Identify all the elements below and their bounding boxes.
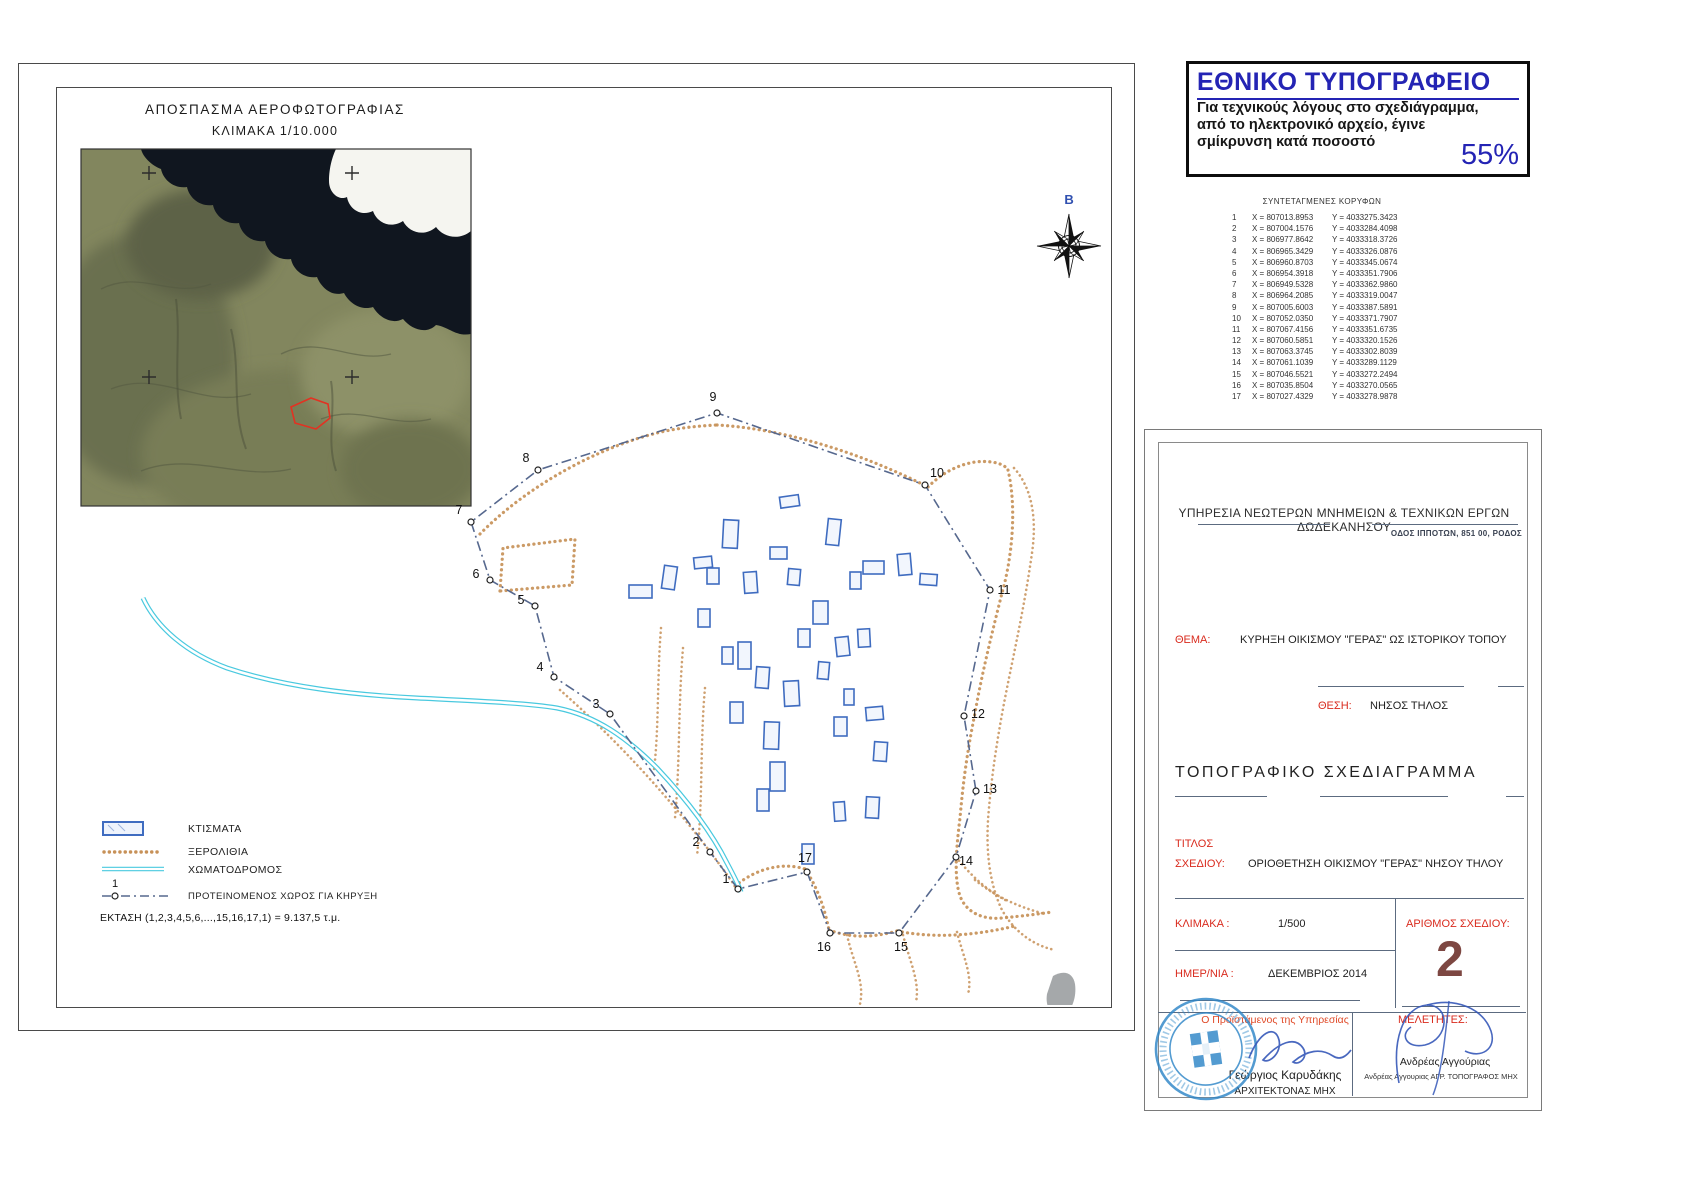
coord-cell: Y = 4033278.9878 bbox=[1332, 392, 1412, 403]
coord-cell: Y = 4033351.6735 bbox=[1332, 325, 1412, 336]
boundary-point-label: 4 bbox=[537, 660, 544, 674]
boundary-point-label: 8 bbox=[523, 451, 530, 465]
coord-cell: X = 806954.3918 bbox=[1252, 269, 1332, 280]
coord-cell: Y = 4033362.9860 bbox=[1332, 280, 1412, 291]
boundary-point-label: 13 bbox=[983, 782, 997, 796]
coord-row: 11X = 807067.4156Y = 4033351.6735 bbox=[1232, 325, 1412, 336]
coord-cell: Y = 4033326.0876 bbox=[1332, 247, 1412, 258]
coord-cell: Y = 4033284.4098 bbox=[1332, 224, 1412, 235]
document-type: ΤΟΠΟΓΡΑΦΙΚΟ ΣΧΕΔΙΑΓΡΑΜΜΑ bbox=[1175, 764, 1477, 782]
coord-cell: 6 bbox=[1232, 269, 1252, 280]
coord-row: 1X = 807013.8953Y = 4033275.3423 bbox=[1232, 213, 1412, 224]
legend-item-dirt-road: ΧΩΜΑΤΟΔΡΟΜΟΣ bbox=[100, 864, 282, 876]
coord-cell: 17 bbox=[1232, 392, 1252, 403]
coord-cell: X = 807035.8504 bbox=[1252, 381, 1332, 392]
boundary-point bbox=[714, 410, 720, 416]
north-label: B bbox=[1064, 192, 1073, 207]
vertex-coordinates-table: ΣΥΝΤΕΤΑΓΜΕΝΕΣ ΚΟΡΥΦΩΝ 1X = 807013.8953Y … bbox=[1232, 197, 1412, 403]
boundary-symbol bbox=[100, 890, 188, 902]
legend-label-dirt-road: ΧΩΜΑΤΟΔΡΟΜΟΣ bbox=[188, 864, 282, 876]
coord-cell: X = 806949.5328 bbox=[1252, 280, 1332, 291]
legend-boundary-marker: 1 bbox=[112, 878, 118, 890]
boundary-point bbox=[896, 930, 902, 936]
coord-row: 8X = 806964.2085Y = 4033319.0047 bbox=[1232, 291, 1412, 302]
coord-cell: X = 807046.5521 bbox=[1252, 370, 1332, 381]
coord-cell: X = 806960.8703 bbox=[1252, 258, 1332, 269]
coord-cell: Y = 4033302.8039 bbox=[1332, 347, 1412, 358]
scale-label: ΚΛΙΜΑΚΑ : bbox=[1175, 918, 1229, 930]
coord-cell: Y = 4033319.0047 bbox=[1332, 291, 1412, 302]
thesi-label: ΘΕΣΗ: bbox=[1318, 700, 1352, 712]
coord-cell: Y = 4033320.1526 bbox=[1332, 336, 1412, 347]
boundary-point-label: 5 bbox=[518, 593, 525, 607]
coord-cell: 1 bbox=[1232, 213, 1252, 224]
coord-cell: 14 bbox=[1232, 358, 1252, 369]
coord-cell: 7 bbox=[1232, 280, 1252, 291]
coord-row: 12X = 807060.5851Y = 4033320.1526 bbox=[1232, 336, 1412, 347]
coord-cell: X = 807005.6003 bbox=[1252, 303, 1332, 314]
coord-row: 7X = 806949.5328Y = 4033362.9860 bbox=[1232, 280, 1412, 291]
building-symbol bbox=[100, 820, 188, 838]
titlos-label-line1: ΤΙΤΛΟΣ bbox=[1175, 838, 1213, 850]
coord-cell: 5 bbox=[1232, 258, 1252, 269]
boundary-point-label: 14 bbox=[959, 854, 973, 868]
surveyor-signature bbox=[1385, 995, 1510, 1100]
date-label: ΗΜΕΡ/ΝΙΑ : bbox=[1175, 968, 1234, 980]
legend-label-buildings: ΚΤΙΣΜΑΤΑ bbox=[188, 823, 242, 835]
boundary-point-label: 15 bbox=[894, 940, 908, 954]
boundary-point bbox=[804, 869, 810, 875]
coord-cell: Y = 4033387.5891 bbox=[1332, 303, 1412, 314]
boundary-point bbox=[735, 886, 741, 892]
scale-value: 1/500 bbox=[1278, 918, 1306, 930]
titlos-value: ΟΡΙΟΘΕΤΗΣΗ ΟΙΚΙΣΜΟΥ "ΓΕΡΑΣ" ΝΗΣΟΥ ΤΗΛΟΥ bbox=[1248, 858, 1503, 870]
boundary-point-label: 12 bbox=[971, 707, 985, 721]
coordinates-table-title: ΣΥΝΤΕΤΑΓΜΕΝΕΣ ΚΟΡΥΦΩΝ bbox=[1232, 197, 1412, 206]
boundary-point bbox=[827, 930, 833, 936]
boundary-point-label: 10 bbox=[930, 466, 944, 480]
coordinates-table-rows: 1X = 807013.8953Y = 4033275.34232X = 807… bbox=[1232, 213, 1412, 403]
compass-star bbox=[1037, 214, 1101, 278]
boundary-point-label: 17 bbox=[798, 851, 812, 865]
coord-cell: 16 bbox=[1232, 381, 1252, 392]
coord-cell: X = 806977.8642 bbox=[1252, 235, 1332, 246]
thesi-value: ΝΗΣΟΣ ΤΗΛΟΣ bbox=[1370, 700, 1448, 712]
coord-row: 15X = 807046.5521Y = 4033272.2494 bbox=[1232, 370, 1412, 381]
coord-cell: X = 807063.3745 bbox=[1252, 347, 1332, 358]
coord-row: 4X = 806965.3429Y = 4033326.0876 bbox=[1232, 247, 1412, 258]
boundary-point-label: 7 bbox=[456, 503, 463, 517]
scan-artifact bbox=[1047, 973, 1076, 1005]
coord-cell: Y = 4033351.7906 bbox=[1332, 269, 1412, 280]
sheet-number-label: ΑΡΙΘΜΟΣ ΣΧΕΔΙΟΥ: bbox=[1406, 918, 1510, 930]
date-value: ΔΕΚΕΜΒΡΙΟΣ 2014 bbox=[1268, 968, 1367, 980]
coord-row: 6X = 806954.3918Y = 4033351.7906 bbox=[1232, 269, 1412, 280]
coord-row: 3X = 806977.8642Y = 4033318.3726 bbox=[1232, 235, 1412, 246]
coord-cell: 8 bbox=[1232, 291, 1252, 302]
coord-cell: 9 bbox=[1232, 303, 1252, 314]
boundary-point bbox=[922, 482, 928, 488]
coord-cell: Y = 4033270.0565 bbox=[1332, 381, 1412, 392]
stamp-percent: 55% bbox=[1461, 139, 1519, 172]
agency-address: ΟΔΟΣ ΙΠΠΟΤΩΝ, 851 00, ΡΟΔΟΣ bbox=[1330, 529, 1522, 538]
sheet-number-value: 2 bbox=[1436, 930, 1466, 988]
coord-cell: X = 807061.1039 bbox=[1252, 358, 1332, 369]
stamp-line1: Για τεχνικούς λόγους στο σχεδιάγραμμα, bbox=[1197, 100, 1519, 117]
legend-item-drystone: ΞΕΡΟΛΙΘΙΑ bbox=[100, 846, 248, 858]
drystone-walls bbox=[480, 425, 1055, 1004]
boundary-point bbox=[535, 467, 541, 473]
boundary-point bbox=[551, 674, 557, 680]
coord-cell: X = 807027.4329 bbox=[1252, 392, 1332, 403]
coord-row: 14X = 807061.1039Y = 4033289.1129 bbox=[1232, 358, 1412, 369]
dirt-road-symbol bbox=[100, 865, 188, 875]
boundary-point bbox=[532, 603, 538, 609]
boundary-point bbox=[607, 711, 613, 717]
coord-row: 13X = 807063.3745Y = 4033302.8039 bbox=[1232, 347, 1412, 358]
coord-cell: X = 806964.2085 bbox=[1252, 291, 1332, 302]
boundary-point-label: 2 bbox=[693, 835, 700, 849]
coord-cell: Y = 4033289.1129 bbox=[1332, 358, 1412, 369]
boundary-point-label: 11 bbox=[998, 583, 1011, 597]
boundary-point-label: 16 bbox=[817, 940, 831, 954]
coord-row: 17X = 807027.4329Y = 4033278.9878 bbox=[1232, 392, 1412, 403]
aerial-photo bbox=[57, 149, 481, 539]
boundary-point bbox=[707, 849, 713, 855]
coord-cell: X = 807067.4156 bbox=[1252, 325, 1332, 336]
legend-label-drystone: ΞΕΡΟΛΙΘΙΑ bbox=[188, 846, 248, 858]
boundary-point bbox=[487, 577, 493, 583]
boundary-point-label: 3 bbox=[593, 697, 600, 711]
coord-row: 10X = 807052.0350Y = 4033371.7907 bbox=[1232, 314, 1412, 325]
coord-cell: Y = 4033371.7907 bbox=[1332, 314, 1412, 325]
boundary-point-label: 9 bbox=[710, 390, 717, 404]
boundary-point-label: 1 bbox=[723, 872, 730, 886]
coord-cell: X = 807004.1576 bbox=[1252, 224, 1332, 235]
national-printing-stamp: ΕΘΝΙΚΟ ΤΥΠΟΓΡΑΦΕΙΟ Για τεχνικούς λόγους … bbox=[1186, 61, 1530, 177]
thema-value: ΚΥΡΗΞΗ ΟΙΚΙΣΜΟΥ "ΓΕΡΑΣ" ΩΣ ΙΣΤΟΡΙΚΟΥ ΤΟΠ… bbox=[1240, 634, 1507, 646]
stamp-line2: από το ηλεκτρονικό αρχείο, έγινε bbox=[1197, 117, 1519, 134]
coord-row: 2X = 807004.1576Y = 4033284.4098 bbox=[1232, 224, 1412, 235]
coord-cell: 10 bbox=[1232, 314, 1252, 325]
boundary-point bbox=[468, 519, 474, 525]
coord-cell: Y = 4033272.2494 bbox=[1332, 370, 1412, 381]
coord-cell: 2 bbox=[1232, 224, 1252, 235]
thema-label: ΘΕΜΑ: bbox=[1175, 634, 1210, 646]
coord-cell: 15 bbox=[1232, 370, 1252, 381]
coord-cell: X = 807052.0350 bbox=[1252, 314, 1332, 325]
boundary-point-label: 6 bbox=[473, 567, 480, 581]
coord-cell: X = 807013.8953 bbox=[1252, 213, 1332, 224]
proposed-boundary-line bbox=[471, 413, 990, 933]
boundary-point bbox=[973, 788, 979, 794]
compass-rose: B bbox=[1037, 192, 1101, 278]
drystone-symbol bbox=[100, 847, 188, 857]
coord-cell: 4 bbox=[1232, 247, 1252, 258]
legend-label-boundary: ΠΡΟΤΕΙΝΟΜΕΝΟΣ ΧΩΡΟΣ ΓΙΑ ΚΗΡΥΞΗ bbox=[188, 891, 378, 902]
coord-row: 16X = 807035.8504Y = 4033270.0565 bbox=[1232, 381, 1412, 392]
legend-item-boundary: ΠΡΟΤΕΙΝΟΜΕΝΟΣ ΧΩΡΟΣ ΓΙΑ ΚΗΡΥΞΗ bbox=[100, 890, 378, 902]
supervisor-signature bbox=[1245, 1020, 1375, 1080]
boundary-point bbox=[987, 587, 993, 593]
titlos-label-line2: ΣΧΕΔΙΟΥ: bbox=[1175, 858, 1225, 870]
boundary-point bbox=[961, 713, 967, 719]
coord-cell: X = 806965.3429 bbox=[1252, 247, 1332, 258]
scanned-topographic-sheet: { "stamp": { "title": "ΕΘΝΙΚΟ ΤΥΠΟΓΡΑΦΕΙ… bbox=[0, 0, 1694, 1177]
stamp-title: ΕΘΝΙΚΟ ΤΥΠΟΓΡΑΦΕΙΟ bbox=[1197, 68, 1519, 100]
coord-cell: 13 bbox=[1232, 347, 1252, 358]
coord-cell: X = 807060.5851 bbox=[1252, 336, 1332, 347]
coord-cell: Y = 4033345.0674 bbox=[1332, 258, 1412, 269]
coord-cell: 12 bbox=[1232, 336, 1252, 347]
coord-cell: Y = 4033275.3423 bbox=[1332, 213, 1412, 224]
coord-row: 5X = 806960.8703Y = 4033345.0674 bbox=[1232, 258, 1412, 269]
coord-row: 9X = 807005.6003Y = 4033387.5891 bbox=[1232, 303, 1412, 314]
coord-cell: 3 bbox=[1232, 235, 1252, 246]
coord-cell: Y = 4033318.3726 bbox=[1332, 235, 1412, 246]
area-note: ΕΚΤΑΣΗ (1,2,3,4,5,6,...,15,16,17,1) = 9.… bbox=[100, 912, 340, 924]
legend-item-buildings: ΚΤΙΣΜΑΤΑ bbox=[100, 820, 242, 838]
coord-cell: 11 bbox=[1232, 325, 1252, 336]
